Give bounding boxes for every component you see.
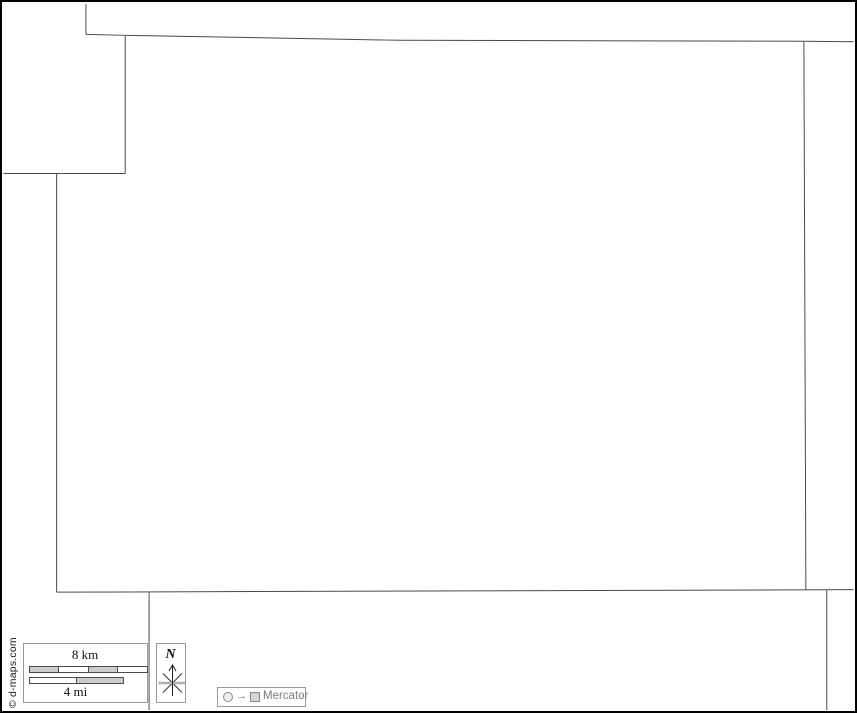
circle-icon bbox=[223, 692, 233, 702]
scale-km-bar bbox=[29, 666, 148, 673]
scale-bar: 8 km 4 mi bbox=[23, 643, 148, 703]
projection-legend: → Mercator bbox=[217, 687, 306, 707]
projection-label: Mercator bbox=[263, 691, 308, 703]
north-boundary bbox=[86, 34, 854, 41]
arrow-right-icon: → bbox=[236, 691, 247, 702]
north-arrow-icon bbox=[157, 662, 187, 700]
compass-rose: N bbox=[156, 643, 186, 703]
scale-km-label: 8 km bbox=[24, 648, 147, 662]
map-outline-svg bbox=[2, 2, 855, 711]
east-boundary bbox=[804, 41, 806, 590]
scale-segment bbox=[88, 667, 118, 672]
map-canvas: 8 km 4 mi N → Mercator © d-maps.com bbox=[0, 0, 857, 713]
scale-segment bbox=[58, 667, 88, 672]
scale-mi-bar bbox=[29, 677, 124, 684]
scale-segment bbox=[30, 667, 59, 672]
compass-north-label: N bbox=[157, 647, 185, 662]
south-boundary bbox=[57, 590, 854, 592]
scale-segment bbox=[30, 678, 76, 683]
square-icon bbox=[250, 692, 260, 702]
scale-mi-label: 4 mi bbox=[24, 685, 128, 699]
copyright-watermark: © d-maps.com bbox=[7, 637, 19, 708]
scale-segment bbox=[117, 667, 147, 672]
scale-segment bbox=[76, 678, 123, 683]
